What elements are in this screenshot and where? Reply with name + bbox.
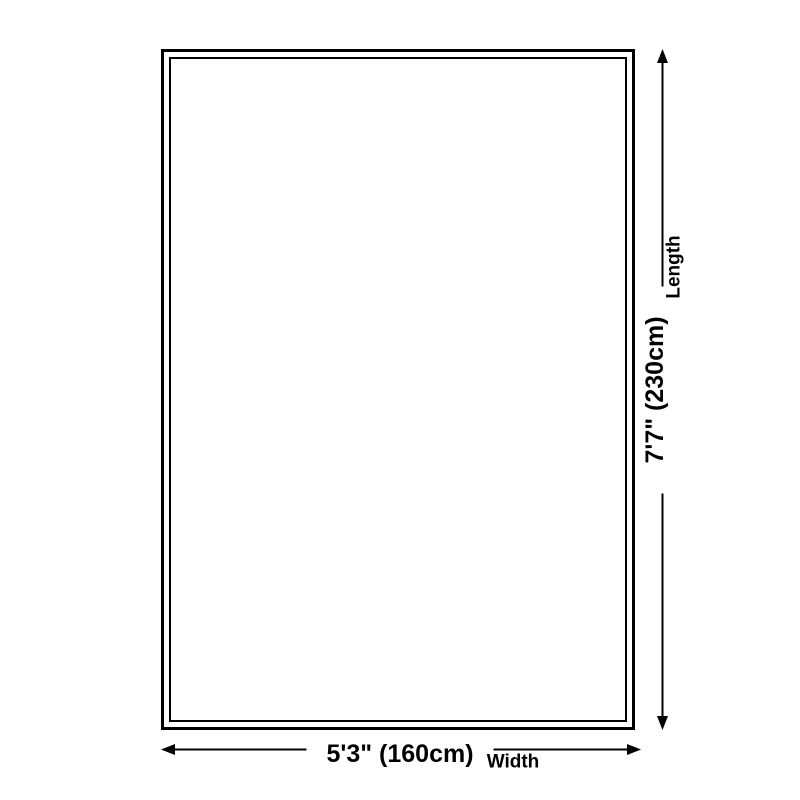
arrow-down-icon xyxy=(657,716,668,730)
length-value-label: 7'7" (230cm) xyxy=(640,286,670,493)
arrow-left-icon xyxy=(161,744,175,755)
size-diagram: 5'3" (160cm) Width 7'7" (230cm) Length xyxy=(0,0,800,800)
length-name-label: Length xyxy=(664,235,687,298)
dimension-arrows-layer xyxy=(0,0,800,800)
arrow-up-icon xyxy=(657,49,668,63)
arrow-right-icon xyxy=(627,744,641,755)
width-name-label: Width xyxy=(487,752,540,775)
width-value-label: 5'3" (160cm) xyxy=(306,739,493,769)
